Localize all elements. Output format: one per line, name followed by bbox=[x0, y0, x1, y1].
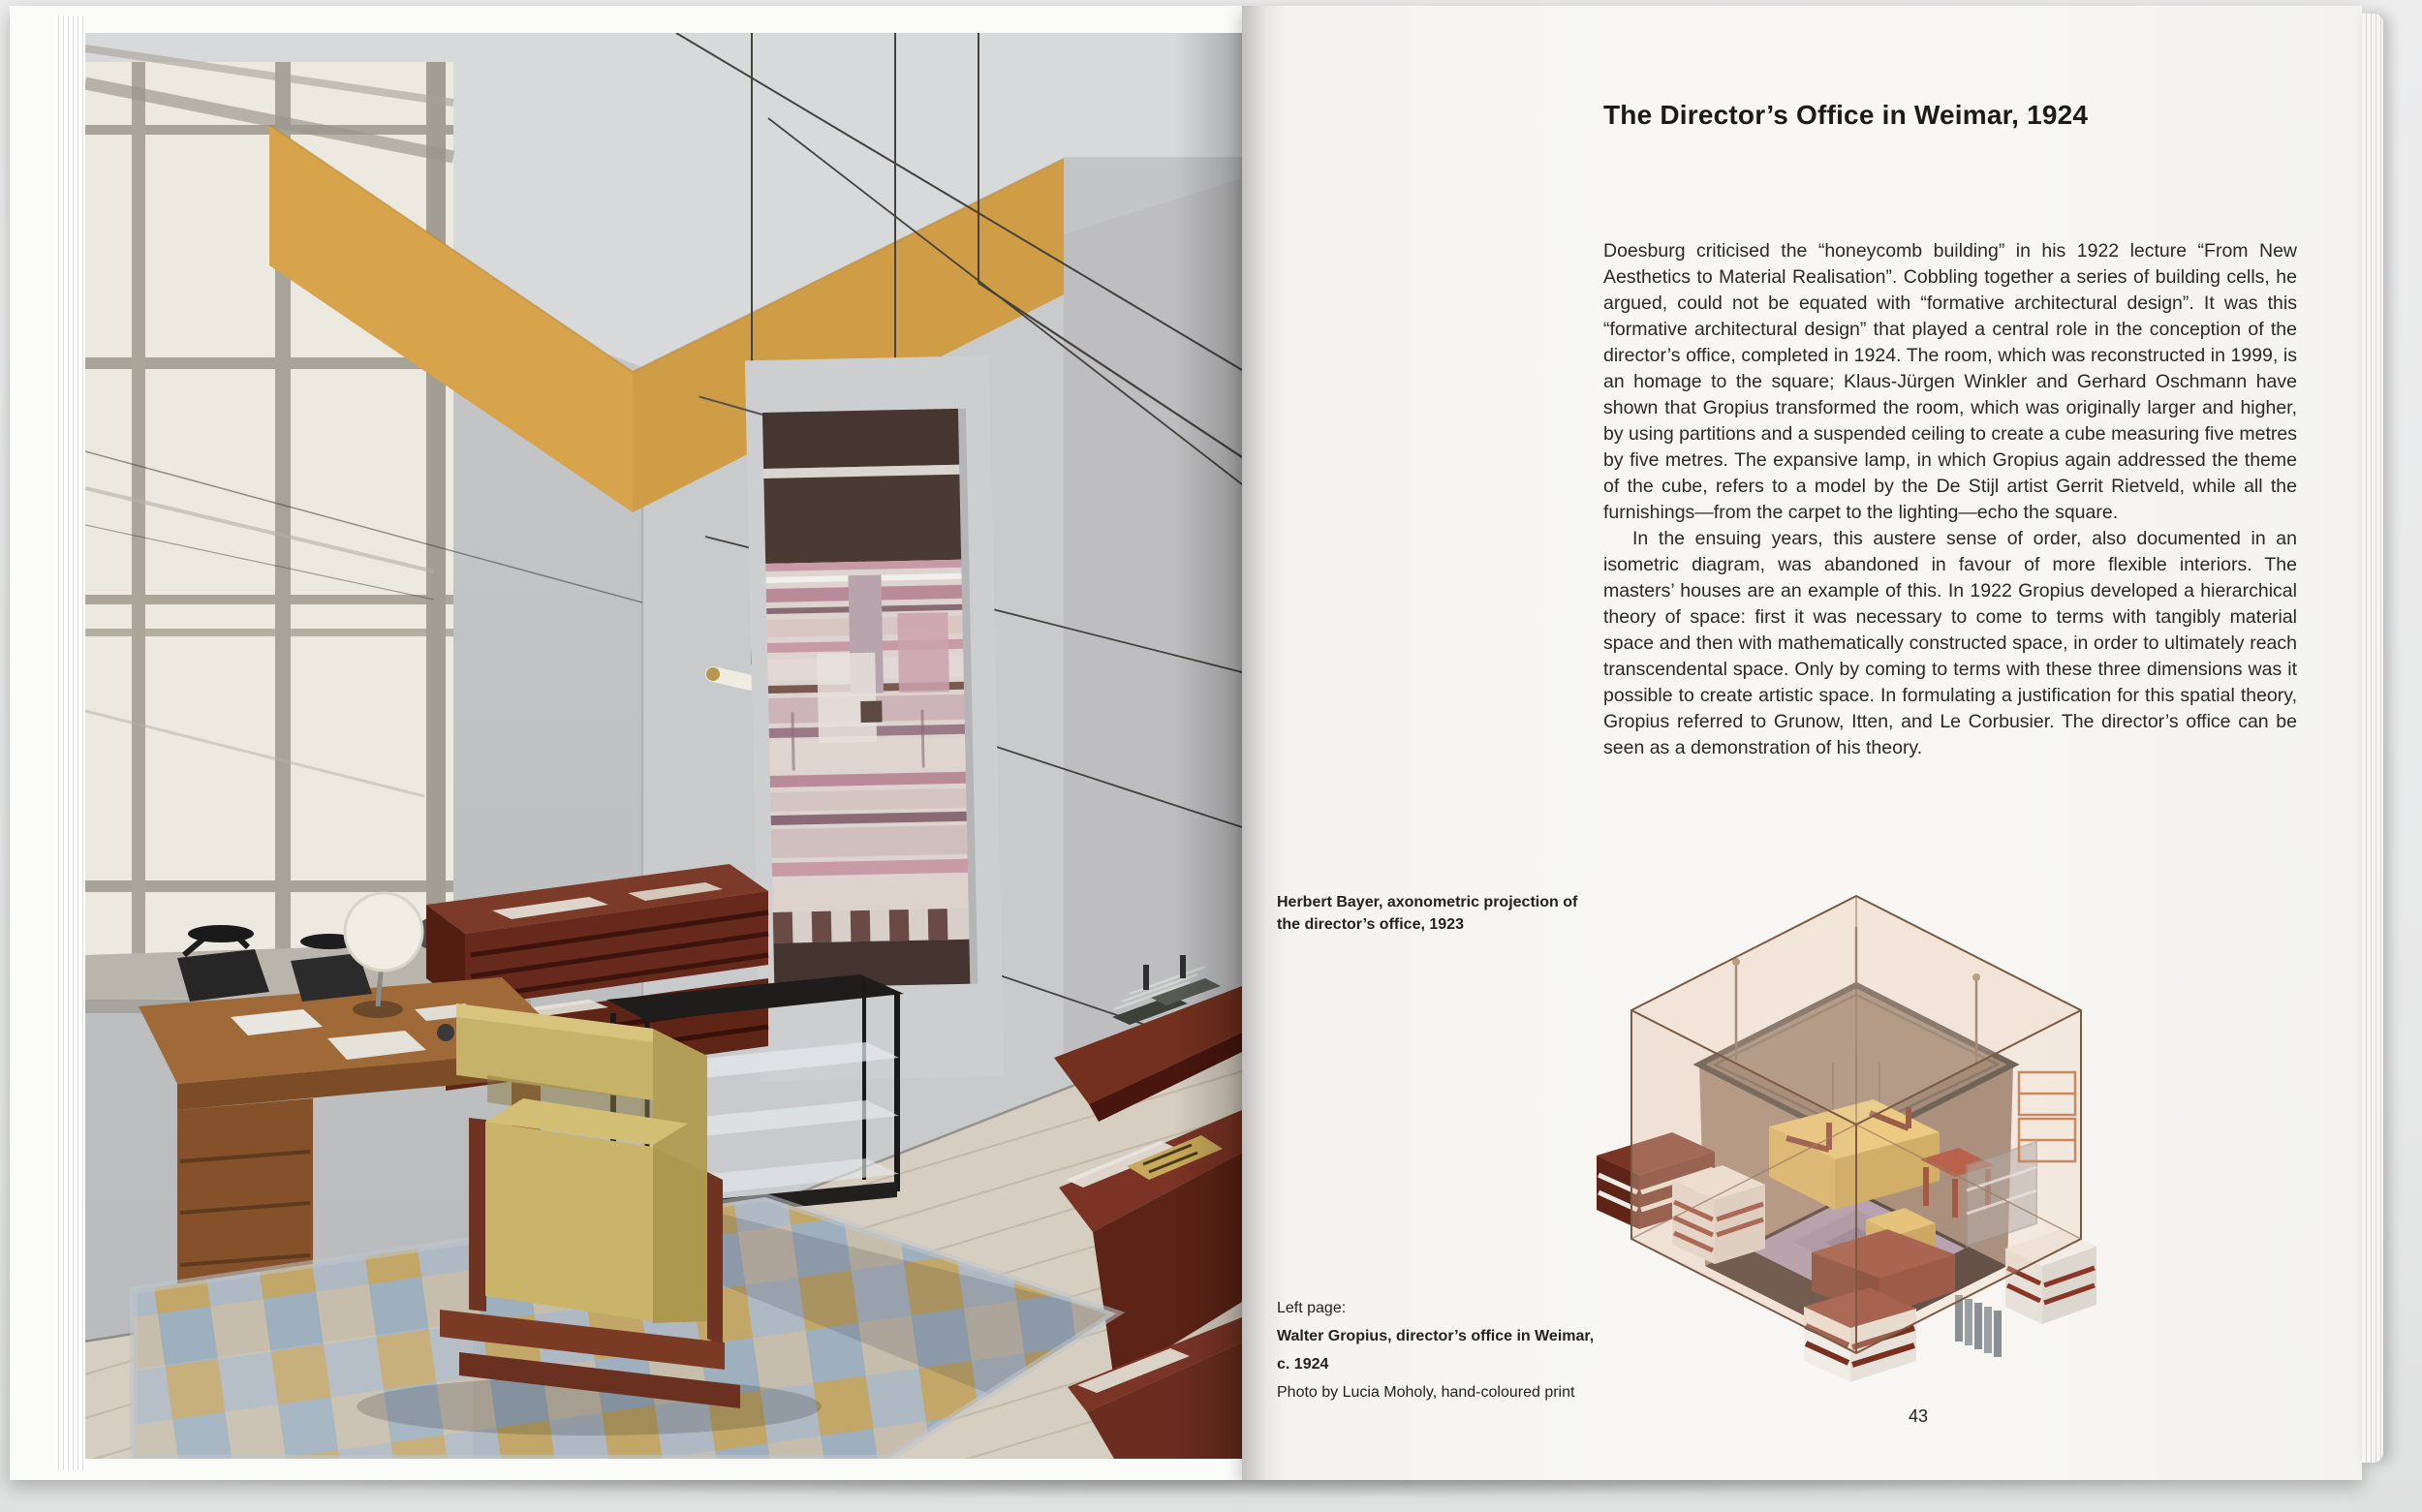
left-page-caption: Left page: Walter Gropius, director’s of… bbox=[1277, 1294, 1606, 1406]
page-stack-edges-left bbox=[54, 15, 85, 1470]
book-spread-scan: The Director’s Office in Weimar, 1924 Do… bbox=[0, 0, 2422, 1512]
axonometric-figure bbox=[1579, 868, 2133, 1412]
gutter-shade bbox=[1242, 6, 1287, 1480]
left-page-caption-label: Left page: bbox=[1277, 1294, 1606, 1322]
axonometric-illustration bbox=[1579, 868, 2133, 1412]
tapestry-pattern bbox=[765, 560, 968, 912]
page-stack-edges-right bbox=[2362, 14, 2383, 1463]
body-text: Doesburg criticised the “honeycomb build… bbox=[1603, 238, 2297, 761]
paragraph-1: Doesburg criticised the “honeycomb build… bbox=[1603, 238, 2297, 526]
paragraph-2: In the ensuing years, this austere sense… bbox=[1603, 526, 2297, 761]
office-photo-illustration bbox=[85, 33, 1242, 1459]
left-page-caption-credit: Photo by Lucia Moholy, hand-coloured pri… bbox=[1277, 1378, 1606, 1406]
office-photo bbox=[85, 33, 1242, 1459]
axonometric-caption: Herbert Bayer, axonometric projection of… bbox=[1277, 891, 1597, 936]
page-number: 43 bbox=[1909, 1406, 1928, 1427]
gutter-shadow bbox=[1174, 33, 1242, 1459]
tapestry-checker-band bbox=[773, 909, 970, 943]
left-page-caption-title-2: c. 1924 bbox=[1277, 1350, 1606, 1378]
left-page bbox=[10, 6, 1242, 1480]
axon-radiator bbox=[1955, 1295, 2002, 1357]
left-page-caption-title-1: Walter Gropius, director’s office in Wei… bbox=[1277, 1322, 1606, 1350]
right-page: The Director’s Office in Weimar, 1924 Do… bbox=[1242, 6, 2362, 1480]
page-title: The Director’s Office in Weimar, 1924 bbox=[1603, 100, 2243, 131]
